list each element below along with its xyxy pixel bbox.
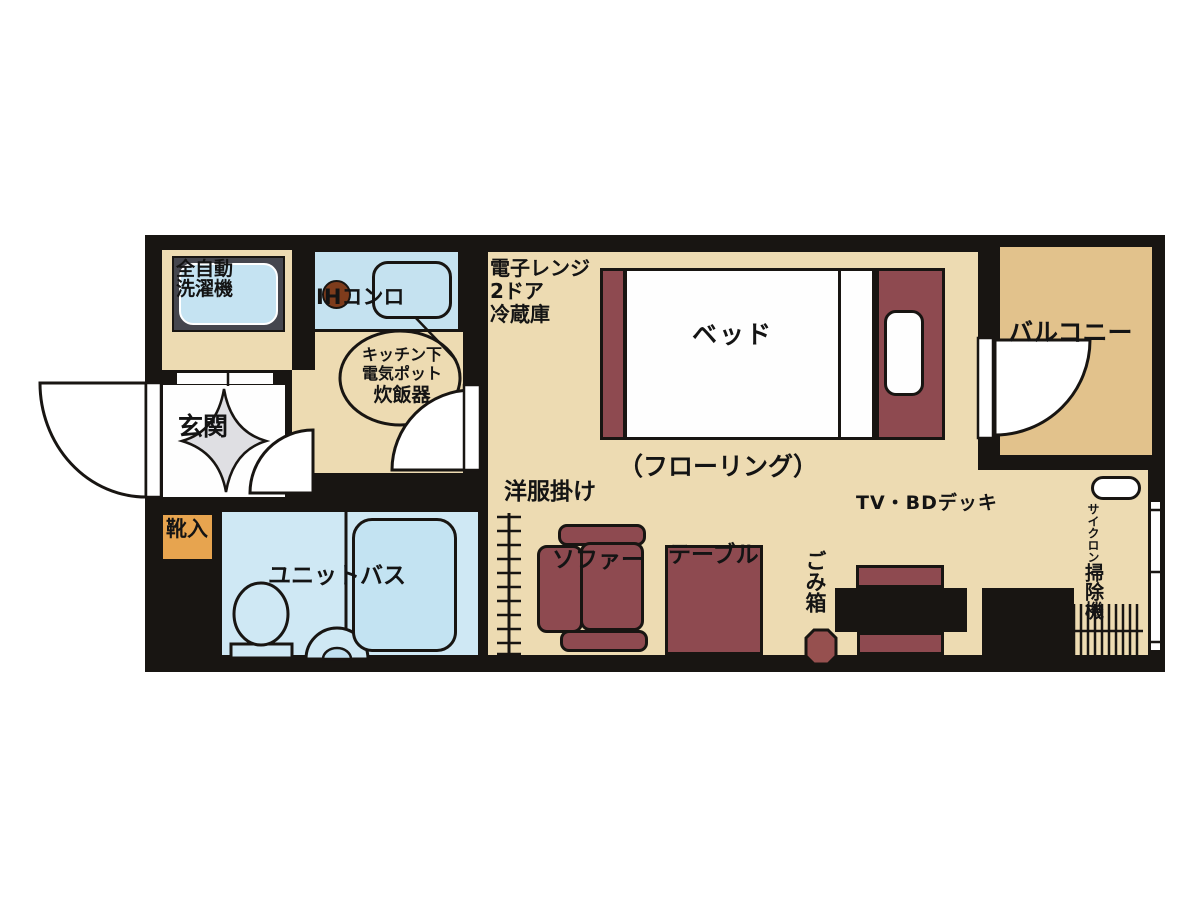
table-label: テーブル [668,543,759,567]
balcony-door-swing [995,340,1090,435]
bed-label: ベッド [692,322,773,348]
vacuum-type-label: サイクロン [1086,503,1100,563]
fridge-label-line2: 2ドア [490,280,590,303]
hanger-rack [497,513,521,654]
tv-unit-body [835,588,967,632]
front-door-swing [40,383,146,497]
fridge-label: 電子レンジ 2ドア 冷蔵庫 [490,257,590,326]
hanger-label: 洋服掛け [504,480,596,504]
tv-shelf-bottom [857,632,944,655]
storage-block [982,588,1074,672]
trash-can [806,630,836,664]
kitchen-door-leaf [464,385,480,470]
bed-pillow [884,310,924,396]
floorplan-canvas: 全自動 洗濯機 IHコンロ キッチン下 電気ポット 炊飯器 電子レンジ 2ドア … [0,0,1200,900]
toilet-bowl [234,583,288,645]
washer-label: 全自動 洗濯機 [176,260,233,300]
bed-footboard [600,268,626,440]
entrance-label: 玄関 [178,414,228,440]
vacuum-label: サイクロン掃除機 [1082,503,1102,621]
washer-label-line2: 洗濯機 [176,280,233,300]
kitchen-under-line2: 電気ポット [343,365,461,384]
kitchen-under-line3: 炊飯器 [343,384,461,406]
kitchen-under-line1: キッチン下 [343,346,461,365]
fridge-label-line3: 冷蔵庫 [490,303,590,326]
front-door-leaf [146,383,161,497]
flooring-label: （フローリング） [618,454,818,480]
comb-hatch [1068,604,1143,660]
tv-bd-label: TV・BDデッキ [856,494,998,514]
balcony-door-leaf [978,338,993,438]
bed-sheet-line-2 [872,270,875,438]
bath-sink-basin [323,648,351,659]
shoe-box-label: 靴入 [166,518,208,540]
tv-shelf-top [856,565,944,588]
ih-stove-label: IHコンロ [316,286,404,308]
fridge-label-line1: 電子レンジ [490,257,590,280]
balcony-label: バルコニー [1008,320,1133,346]
trash-label: ごみ箱 [804,550,826,635]
bed-sheet-line-1 [838,270,841,438]
kitchen-under-label: キッチン下 電気ポット 炊飯器 [343,346,461,406]
window-ticks [1149,510,1162,642]
unit-bath-label: ユニットバス [268,564,406,588]
washer-label-line1: 全自動 [176,260,233,280]
sofa-label: ソファー [552,548,644,572]
vacuum-name-label: 掃除機 [1082,563,1104,620]
vacuum-cleaner [1091,476,1141,500]
sofa-armrest-bottom [560,630,648,652]
plan-symbols [0,0,1200,900]
